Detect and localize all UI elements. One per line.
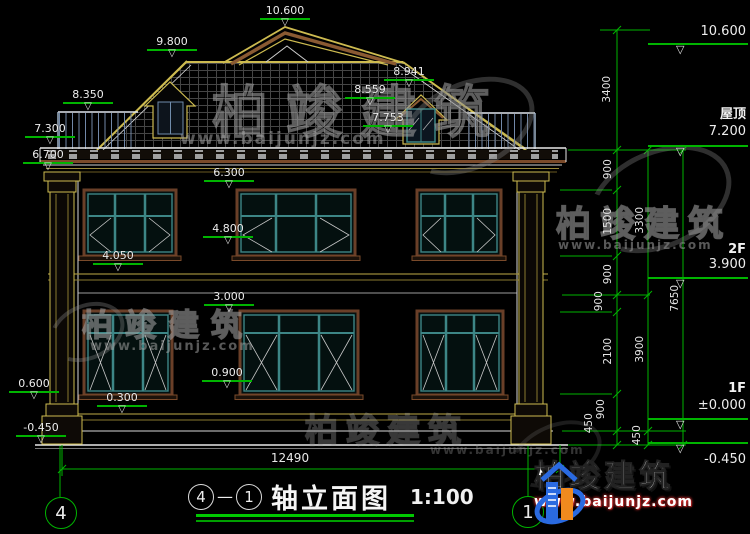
brand-logo: 柏竣建筑 www.baijunjz.com (534, 460, 693, 510)
window-1f-right (412, 311, 508, 400)
plinth-band (42, 414, 553, 431)
window-1f-middle (235, 311, 363, 400)
second-floor-band (48, 274, 548, 293)
watermark-center-url: www.baijunjz.com (180, 129, 386, 149)
left-railing (58, 112, 138, 149)
cad-elevation-drawing: 柏竣建筑 www.baijunjz.com 柏竣建筑 www.baijunjz.… (0, 0, 750, 534)
title-scale: 1:100 (410, 485, 474, 509)
title-axis-start: 4 (188, 484, 214, 510)
title-text: 轴立面图 (271, 477, 391, 516)
window-2f-left (79, 190, 181, 261)
axis-bubble-4: 4 (45, 497, 77, 529)
window-2f-middle (232, 190, 360, 261)
title-axis-separator: — (217, 487, 233, 506)
baijun-logo-icon (534, 460, 588, 528)
window-2f-right (412, 190, 506, 261)
center-gable (223, 27, 404, 65)
title-underline (196, 520, 414, 522)
title-underline (196, 514, 414, 517)
drawing-title: 4 — 1 轴立面图 1:100 (188, 477, 474, 516)
overall-width-dim: 12490 (230, 451, 350, 465)
title-axis-end: 1 (236, 484, 262, 510)
